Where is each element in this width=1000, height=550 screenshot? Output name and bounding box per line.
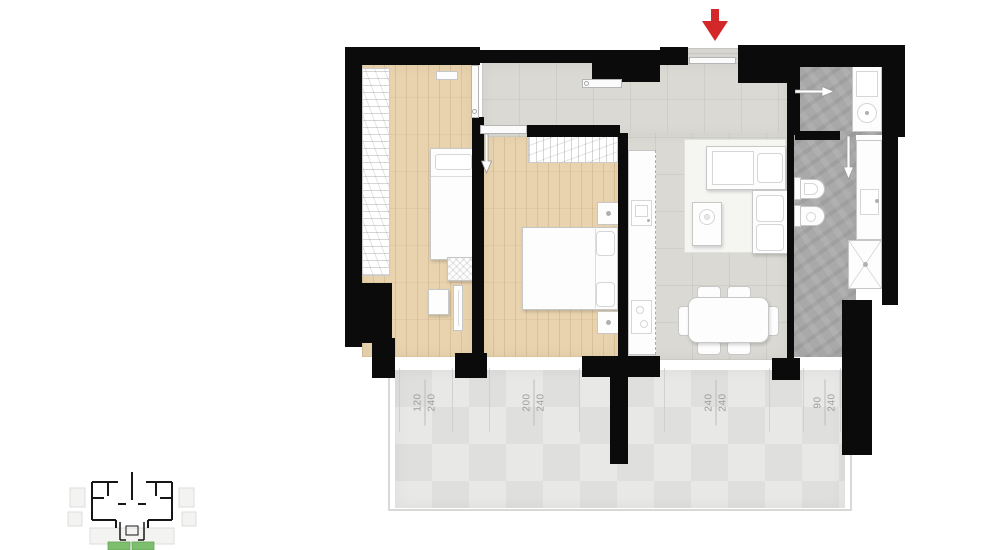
balcony-railing — [388, 373, 390, 511]
toilet — [800, 179, 825, 199]
bidet — [800, 206, 825, 226]
kitchen-sink — [631, 200, 652, 226]
window-dimension-label: 120 240 — [413, 380, 438, 426]
wall — [480, 50, 592, 63]
nightstand — [597, 311, 619, 334]
wardrobe-bedroom-1 — [362, 68, 390, 276]
bed-pillow — [435, 154, 472, 170]
bed-pillow — [596, 282, 615, 307]
window-dimension-label: 90 240 — [813, 380, 838, 426]
window-dimension-label: 200 240 — [522, 380, 547, 426]
wall — [592, 50, 660, 82]
plant-icon — [699, 209, 715, 225]
sofa-cushion — [757, 153, 783, 183]
kitchen-cooktop — [631, 300, 652, 334]
dimension-leader — [399, 368, 400, 432]
dimension-height: 240 — [717, 380, 729, 426]
wall — [738, 62, 790, 83]
dimension-leader — [489, 368, 490, 432]
sofa-lounger-cushion — [712, 151, 754, 185]
wall — [618, 133, 628, 360]
dimension-leader — [769, 368, 770, 432]
window-dimension-label: 240 240 — [704, 380, 729, 426]
dining-chair — [727, 341, 751, 355]
nightstand — [597, 202, 619, 225]
wall — [795, 131, 840, 140]
bed-pillow — [596, 231, 615, 256]
desk — [428, 289, 449, 315]
wall — [772, 358, 800, 380]
bathroom-sink-counter — [856, 140, 882, 240]
shower — [848, 240, 882, 289]
wall — [842, 300, 872, 455]
entrance-door-leaf — [689, 57, 736, 64]
door-swing-arrow-icon — [795, 86, 835, 97]
dimension-width: 120 — [413, 380, 426, 426]
dimension-leader — [840, 368, 841, 432]
wall — [787, 65, 800, 135]
bench — [453, 285, 463, 331]
dimension-leader — [452, 368, 453, 432]
pouf — [447, 257, 473, 281]
wall — [527, 125, 620, 137]
dimension-leader — [803, 368, 804, 432]
dimension-width: 240 — [704, 380, 717, 426]
bed-blanket-line — [431, 176, 476, 177]
dining-table — [688, 297, 769, 343]
door-handle — [472, 109, 477, 114]
sofa-cushion — [756, 195, 784, 222]
bedroom-2-door-leaf — [480, 125, 527, 134]
wall-balcony-divider — [610, 377, 628, 464]
key-plan — [66, 470, 198, 550]
dimension-width: 200 — [522, 380, 535, 426]
wall — [372, 338, 395, 378]
wall — [345, 47, 480, 65]
dimension-leader — [664, 368, 665, 432]
door-handle — [584, 81, 589, 86]
door-swing-arrow-icon — [843, 136, 854, 180]
wall — [787, 135, 794, 360]
dimension-height: 240 — [426, 380, 438, 426]
door-swing-arrow-icon — [481, 134, 492, 174]
entrance-arrow-icon — [700, 9, 730, 42]
dimension-height: 240 — [535, 380, 547, 426]
floor-plan-canvas: 120 240 200 240 240 240 90 240 — [0, 0, 1000, 550]
dimension-width: 90 — [813, 380, 826, 426]
wall — [660, 47, 688, 65]
sofa-cushion — [756, 224, 784, 251]
dimension-leader — [579, 368, 580, 432]
dimension-height: 240 — [826, 380, 838, 426]
wall — [882, 135, 898, 305]
wardrobe-bedroom-2 — [528, 134, 618, 163]
wall — [345, 283, 392, 343]
dining-chair — [697, 341, 721, 355]
washing-machine — [852, 66, 882, 132]
radiator-bedroom-1 — [436, 71, 458, 80]
wall — [882, 45, 905, 137]
balcony-railing — [388, 509, 852, 511]
